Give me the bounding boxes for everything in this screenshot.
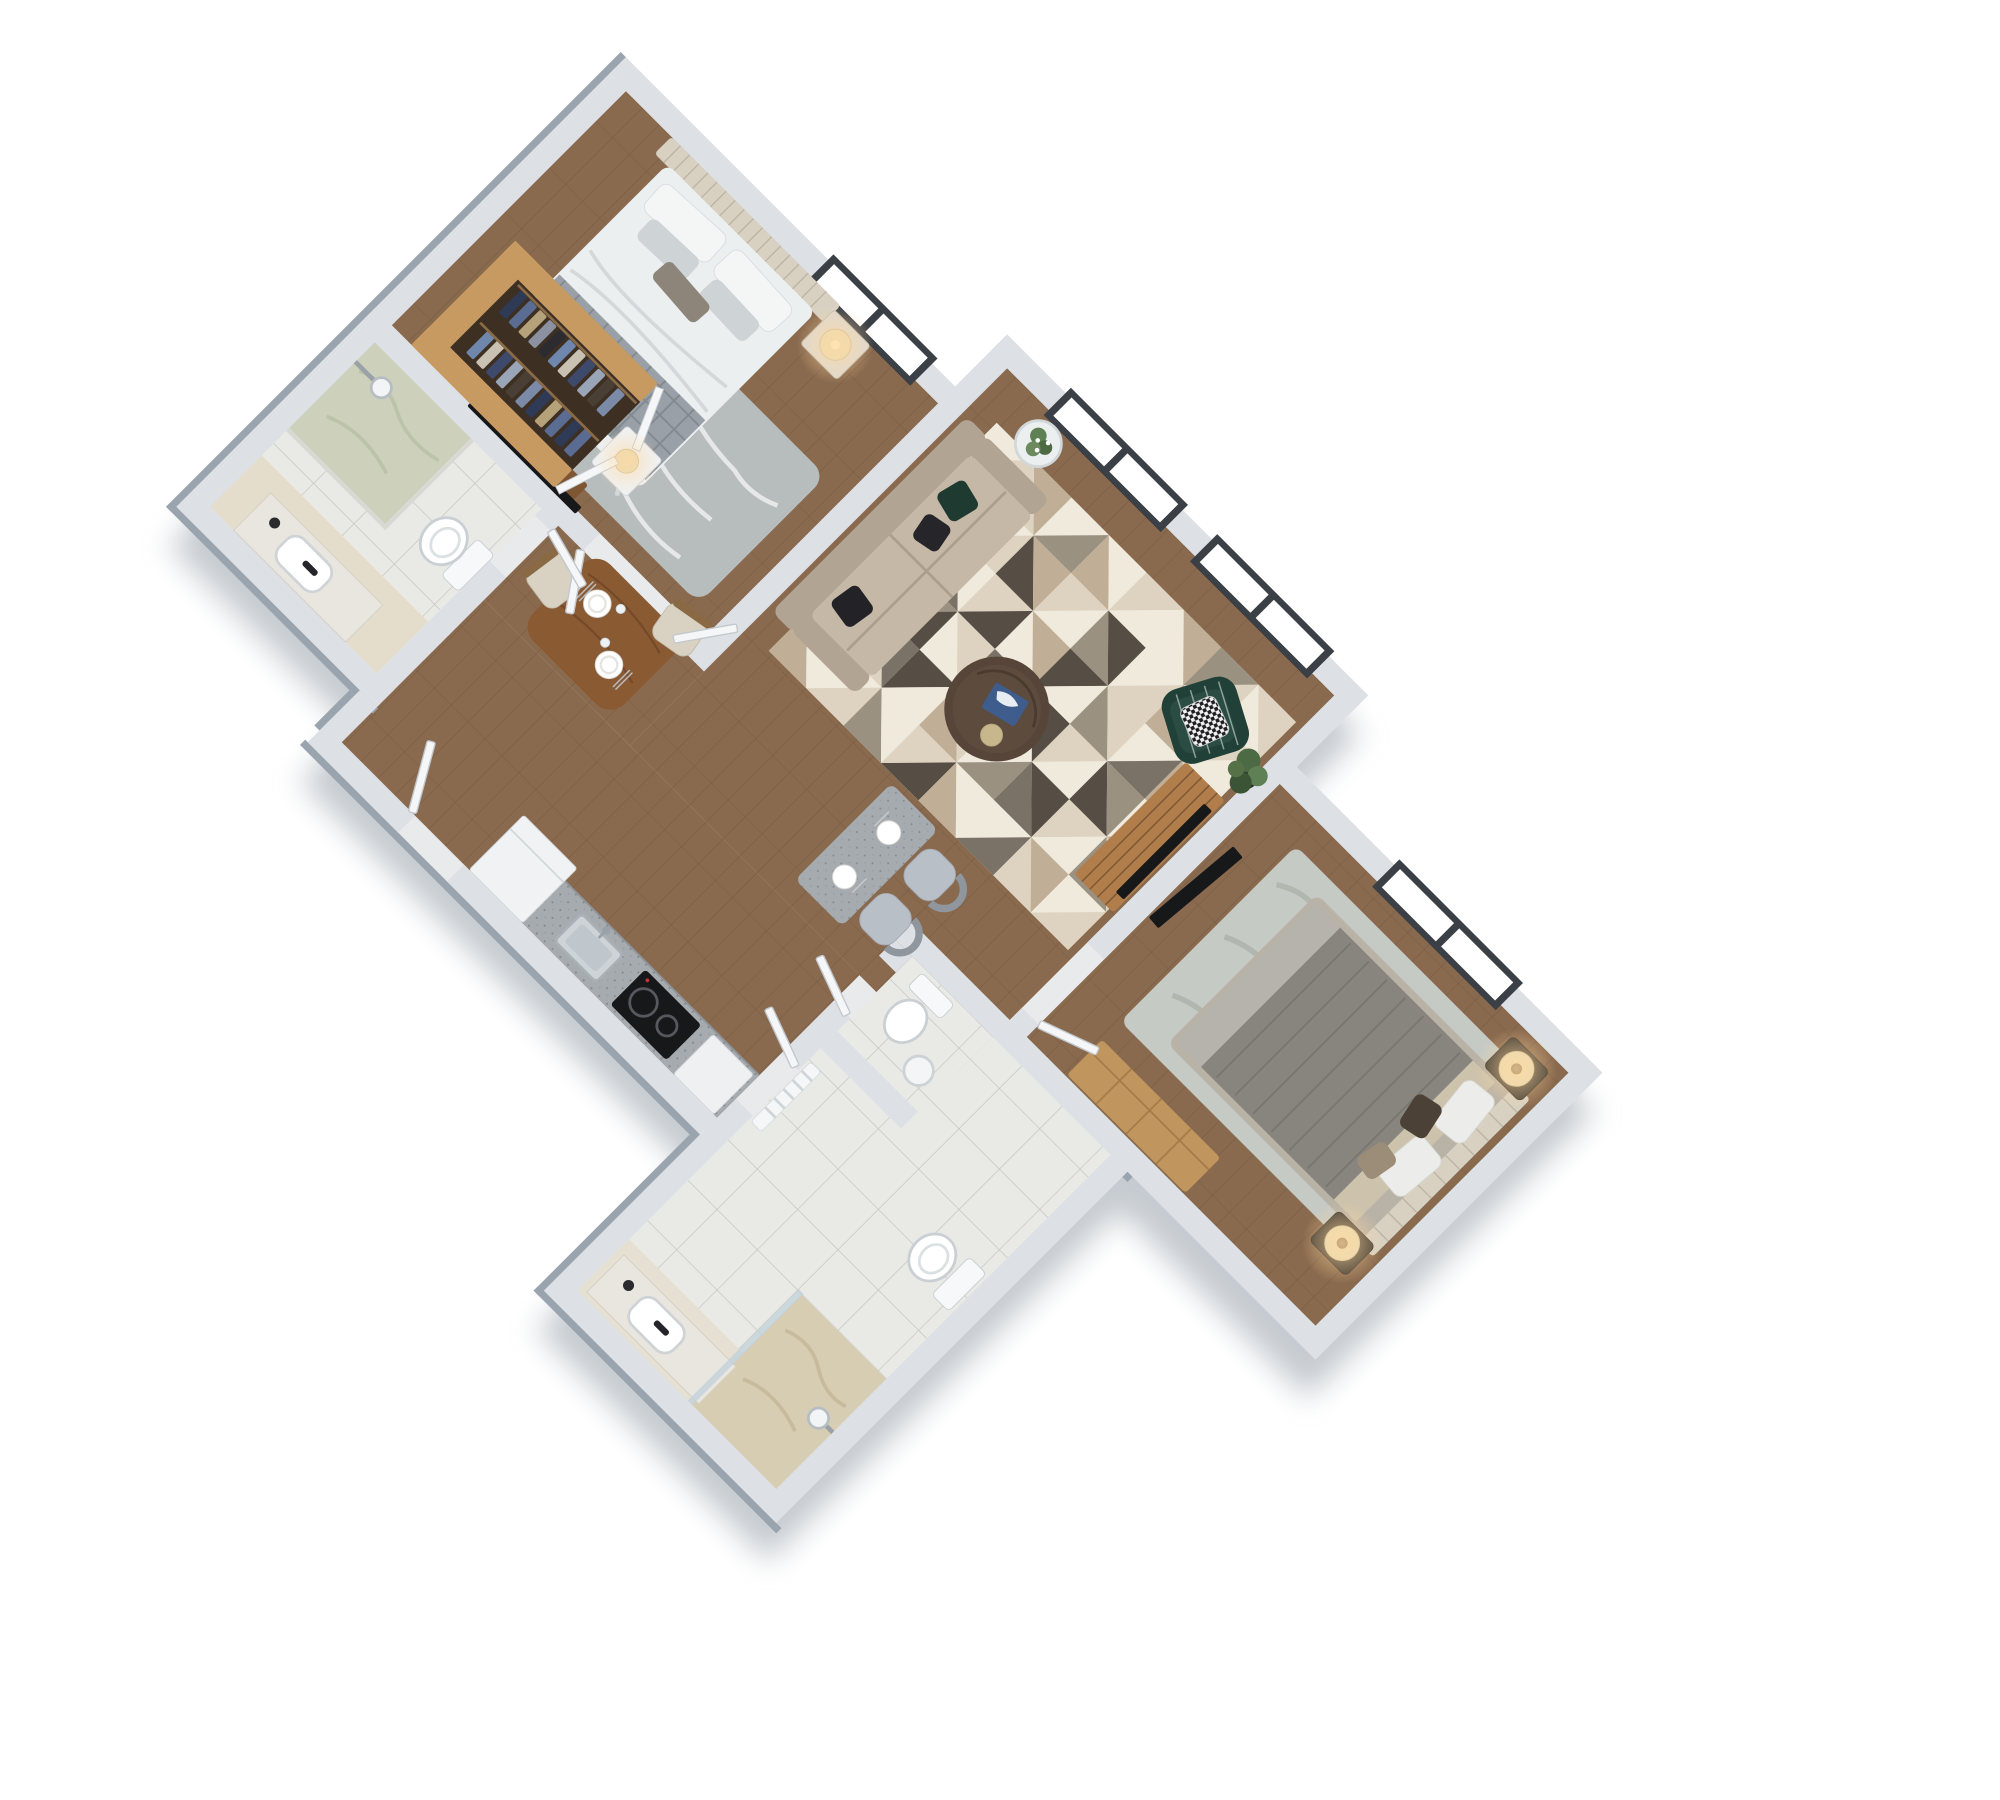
floorplan-render bbox=[0, 0, 2000, 1800]
rotated-plan bbox=[0, 0, 1695, 1750]
floorplan-stage bbox=[0, 0, 2000, 1800]
